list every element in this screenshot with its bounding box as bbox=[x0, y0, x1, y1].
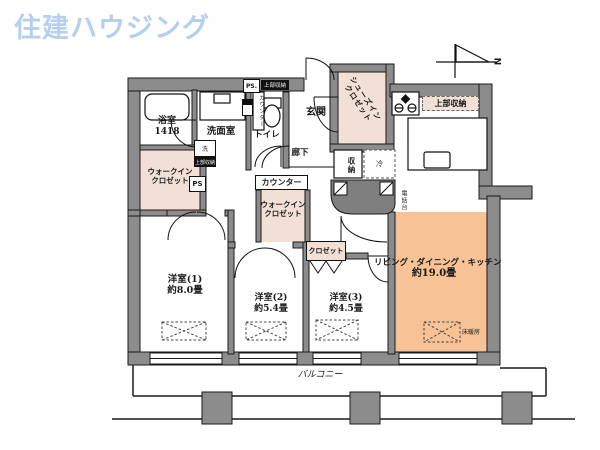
entrance-label: 玄関 bbox=[294, 107, 338, 119]
small-storage-badge bbox=[242, 99, 253, 116]
floor-heating-label: 床暖房 bbox=[459, 329, 483, 336]
phone-stand-label: 電話台 bbox=[397, 182, 407, 218]
floorplan-image: 住建ハウジング N 浴室 1418 洗面室 カウンター トイレ 玄関 シューズイ… bbox=[0, 0, 600, 450]
room2-label: 洋室(2) 約5.4畳 bbox=[240, 293, 302, 315]
closet-label: クロゼット bbox=[306, 241, 346, 261]
balcony-label: バルコニー bbox=[278, 370, 362, 381]
toilet-bowl bbox=[264, 105, 280, 127]
company-logo: 住建ハウジング bbox=[14, 6, 210, 45]
washer-box: 洗 bbox=[194, 140, 216, 157]
floorplan-drawing bbox=[0, 0, 600, 450]
wic-center-label: ウォークイン クロゼット bbox=[257, 200, 309, 218]
ps-dot-badge: PS. bbox=[243, 79, 260, 93]
sink bbox=[424, 152, 450, 168]
north-label: N bbox=[491, 54, 502, 68]
storage-label: 収納 bbox=[340, 152, 356, 178]
refrigerator-label: 冷 bbox=[364, 150, 395, 178]
pipe-space-block bbox=[331, 180, 395, 214]
north-arrow-icon bbox=[436, 44, 496, 78]
room1-label: 洋室(1) 約8.0畳 bbox=[148, 274, 222, 297]
counter-label: カウンター bbox=[255, 175, 308, 190]
upper-storage-badge: 上部収納 bbox=[261, 80, 289, 90]
toilet-counter-label: カウンター bbox=[254, 94, 264, 128]
bath-label: 浴室 1418 bbox=[140, 116, 194, 138]
ldk-label: リビング・ダイニング・キッチン 約19.0畳 bbox=[374, 258, 494, 280]
toilet-label: トイレ bbox=[248, 130, 286, 140]
small-storage-badge-strip bbox=[243, 100, 252, 105]
washer-upper-storage-badge: 上部収納 bbox=[194, 157, 216, 167]
ps-badge: PS bbox=[189, 176, 206, 192]
kitchen-upper-storage-label: 上部収納 bbox=[422, 96, 479, 111]
hallway-label: 廊下 bbox=[282, 148, 318, 158]
windows bbox=[150, 353, 477, 364]
room3-label: 洋室(3) 約4.5畳 bbox=[314, 293, 378, 315]
washroom-label: 洗面室 bbox=[197, 126, 245, 137]
